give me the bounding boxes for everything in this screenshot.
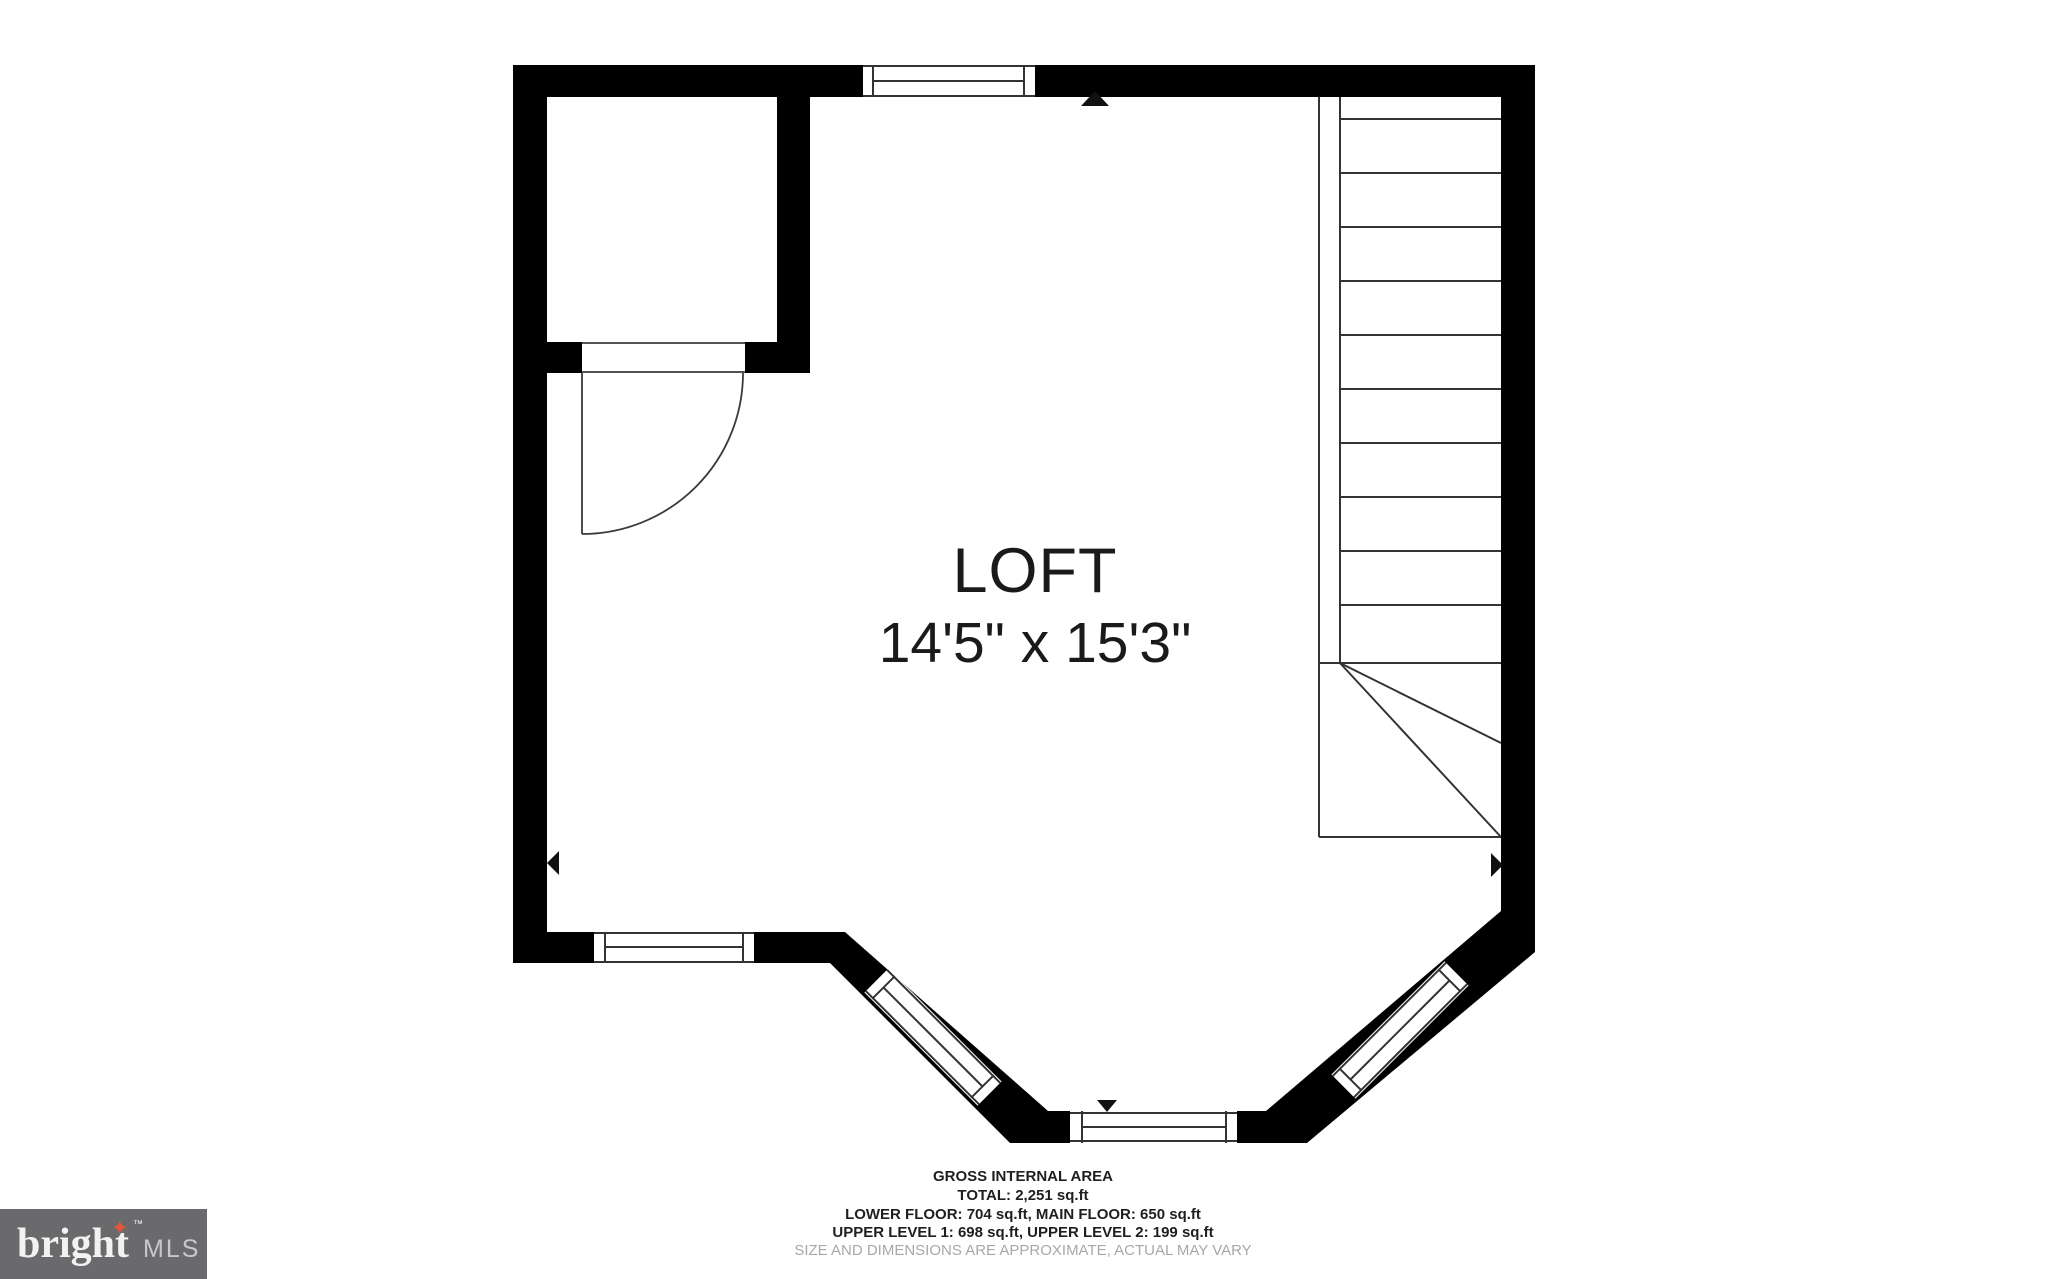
brightmls-logo: bright ✦ ™ MLS bbox=[0, 1209, 207, 1279]
marker-arrow-left bbox=[547, 851, 559, 875]
closet-right-wall bbox=[777, 97, 810, 373]
upper-levels-line: UPPER LEVEL 1: 698 sq.ft, UPPER LEVEL 2:… bbox=[832, 1224, 1213, 1241]
door bbox=[582, 341, 745, 534]
gross-internal-area-heading: GROSS INTERNAL AREA bbox=[933, 1168, 1113, 1185]
brightmls-logo-mls-text: MLS bbox=[143, 1237, 200, 1262]
window-bay-bottom bbox=[1070, 1110, 1237, 1145]
door-swing-arc bbox=[582, 373, 743, 534]
room-dimensions: 14'5" x 15'3" bbox=[879, 611, 1192, 675]
disclaimer-line: SIZE AND DIMENSIONS ARE APPROXIMATE, ACT… bbox=[794, 1242, 1251, 1259]
closet-walls bbox=[547, 97, 810, 373]
window-top bbox=[863, 64, 1035, 98]
room-label: LOFT bbox=[952, 536, 1117, 606]
window-bay-left-diagonal bbox=[864, 968, 1001, 1105]
window-bottom-left bbox=[594, 931, 754, 965]
lower-main-floor-line: LOWER FLOOR: 704 sq.ft, MAIN FLOOR: 650 … bbox=[845, 1206, 1201, 1223]
door-opening bbox=[582, 341, 745, 374]
window-bay-right-diagonal bbox=[1331, 961, 1468, 1098]
closet-bottom-wall-right bbox=[745, 342, 810, 373]
brightmls-logo-trademark: ™ bbox=[133, 1220, 143, 1230]
stair-winder-fan-1 bbox=[1340, 663, 1501, 743]
closet-bottom-wall-left bbox=[547, 342, 582, 373]
total-area-line: TOTAL: 2,251 sq.ft bbox=[957, 1187, 1088, 1204]
floorplan-drawing: LOFT 14'5" x 15'3" GROSS INTERNAL AREA T… bbox=[0, 0, 2048, 1279]
area-summary: GROSS INTERNAL AREA TOTAL: 2,251 sq.ft L… bbox=[794, 1168, 1251, 1259]
floorplan-page: { "plan": { "room": { "label": "LOFT", "… bbox=[0, 0, 2048, 1279]
stair-winder-fan-2 bbox=[1340, 663, 1501, 837]
staircase bbox=[1319, 97, 1501, 837]
brightmls-logo-star-icon: ✦ bbox=[111, 1218, 129, 1239]
